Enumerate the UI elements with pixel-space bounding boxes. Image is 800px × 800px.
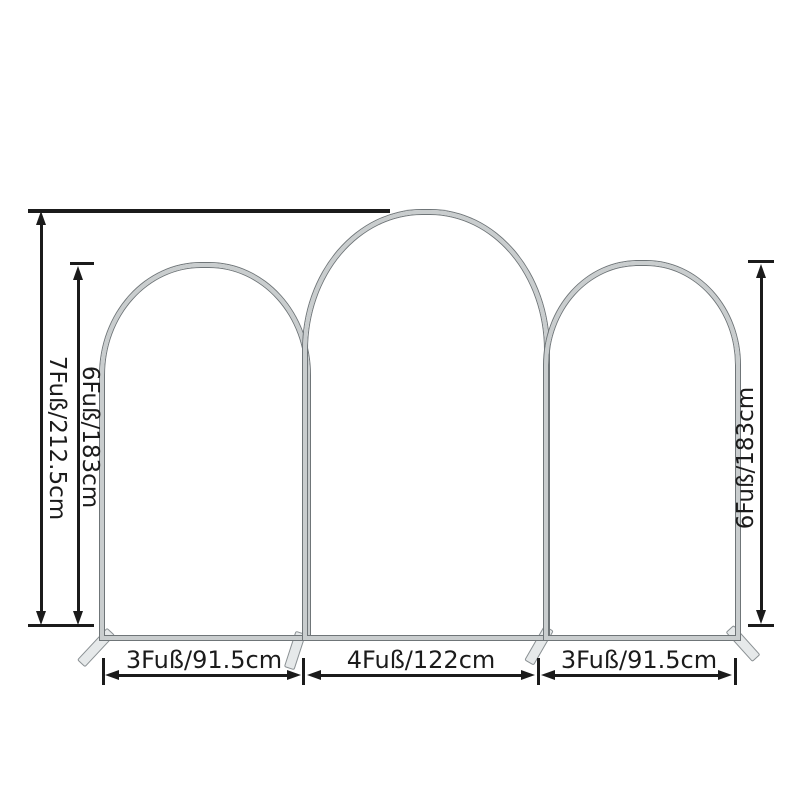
- right-arch-frame: [544, 261, 740, 640]
- right-arch-height-arrowhead-down-icon: [756, 610, 766, 624]
- base-width-tick-2: [302, 658, 305, 685]
- left-arch-height-arrowhead-up-icon: [73, 266, 83, 280]
- left-base-width-arrowhead-right-icon: [287, 670, 301, 680]
- total-height-top-reference-line: [28, 209, 390, 213]
- arch-backdrop-dimension-diagram: 7Fuß/212.5cm 6Fuß/183cm 6Fuß/183cm 3Fuß/…: [0, 0, 800, 800]
- right-arch-height-bottom-tick: [748, 624, 774, 627]
- left-base-width-label: 3Fuß/91.5cm: [126, 646, 282, 674]
- left-arch-height-label: 6Fuß/183cm: [77, 366, 103, 508]
- total-height-dimension-line: [40, 224, 43, 614]
- right-arch-height-arrowhead-up-icon: [756, 264, 766, 278]
- middle-base-width-label: 4Fuß/122cm: [347, 646, 496, 674]
- left-base-width-arrowhead-left-icon: [105, 670, 119, 680]
- middle-base-width-arrowhead-right-icon: [521, 670, 535, 680]
- middle-arch-frame: [303, 210, 549, 640]
- middle-base-width-dimension-line: [321, 674, 521, 677]
- middle-base-width-arrowhead-left-icon: [307, 670, 321, 680]
- total-height-arrowhead-down-icon: [36, 611, 46, 625]
- left-arch-height-arrowhead-down-icon: [73, 611, 83, 625]
- right-arch-height-dimension-line: [760, 274, 763, 614]
- left-base-width-dimension-line: [119, 674, 287, 677]
- base-width-tick-3: [537, 658, 540, 685]
- total-height-arrowhead-up-icon: [36, 211, 46, 225]
- right-arch-height-top-tick: [748, 260, 774, 263]
- left-arch-frame: [100, 263, 310, 640]
- right-base-width-dimension-line: [555, 674, 718, 677]
- left-arch-height-top-tick: [70, 262, 94, 265]
- total-height-label: 7Fuß/212.5cm: [44, 356, 70, 520]
- right-base-width-arrowhead-left-icon: [541, 670, 555, 680]
- right-arch-height-label: 6Fuß/183cm: [733, 387, 759, 529]
- right-base-width-label: 3Fuß/91.5cm: [561, 646, 717, 674]
- right-base-width-arrowhead-right-icon: [718, 670, 732, 680]
- base-width-tick-4: [734, 658, 737, 685]
